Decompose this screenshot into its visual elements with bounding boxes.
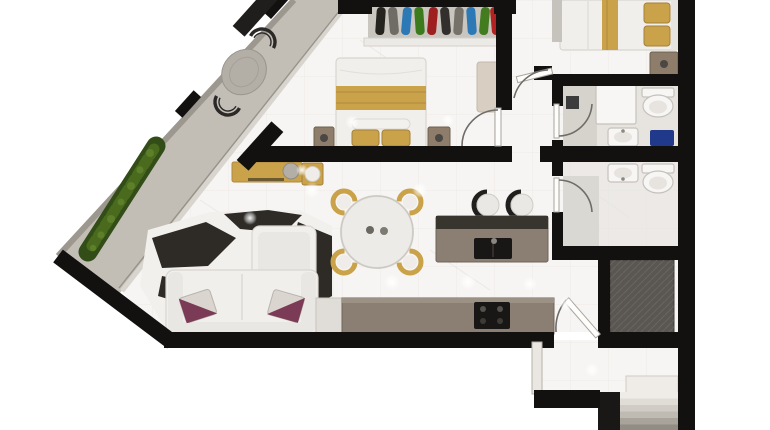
toilet-icon [642,88,674,117]
floor-plan-canvas [0,0,770,430]
cooktop-icon [474,302,510,329]
double-bed-icon [336,58,426,156]
bed-gold-runner [336,86,426,110]
blue-mat-icon [650,130,674,146]
shower-cabinet [596,84,636,124]
kitchen-counter-icon [316,298,554,334]
double-bed-icon [560,0,678,50]
elevator-shaft [610,260,674,336]
shower-drain-icon [566,96,579,109]
shower-floor [563,86,597,146]
sink-icon [608,128,638,146]
toilet-icon [642,164,674,193]
bedroom-bench-icon [477,62,498,112]
sink-icon [608,164,638,182]
kitchen-island-icon [436,216,548,262]
floor-plan-svg [0,0,770,430]
dining-area [333,191,421,273]
fridge-icon [316,298,342,334]
bathroom-bottom-shower-strip [563,176,599,246]
dining-table-icon [341,196,413,268]
nightstand-icon [650,52,678,76]
